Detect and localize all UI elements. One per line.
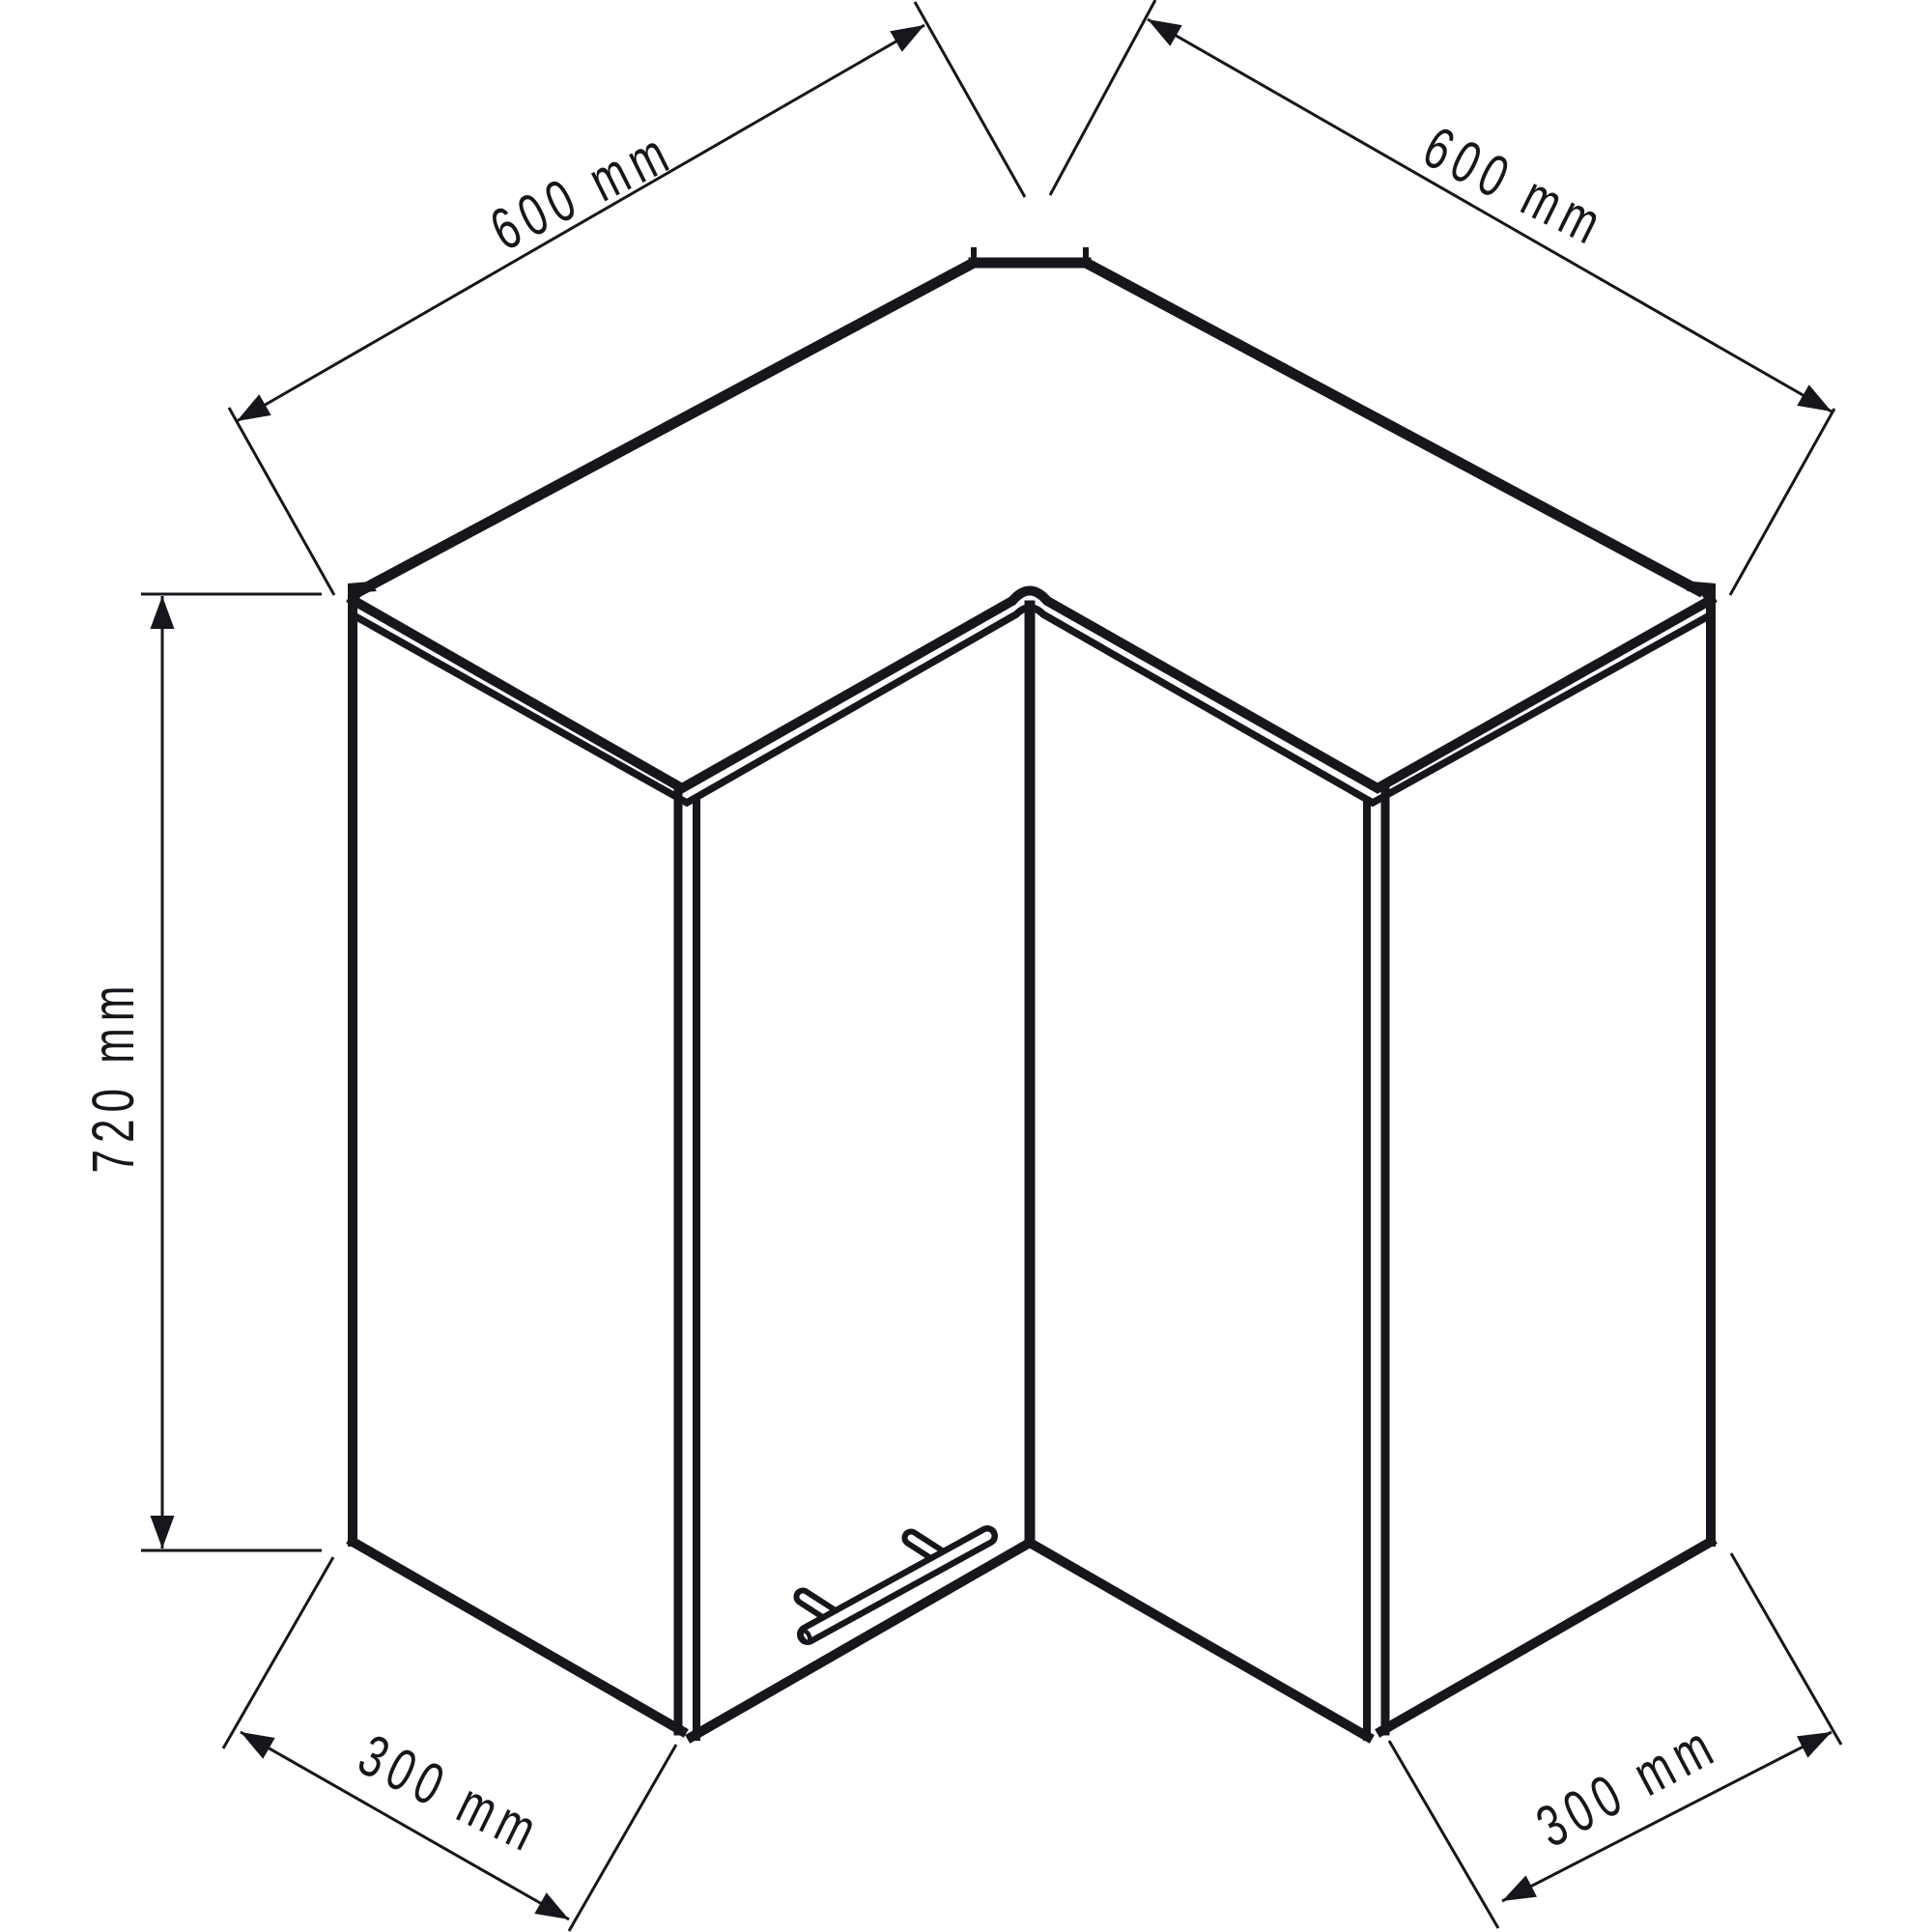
svg-text:720 mm: 720 mm [81, 980, 147, 1174]
